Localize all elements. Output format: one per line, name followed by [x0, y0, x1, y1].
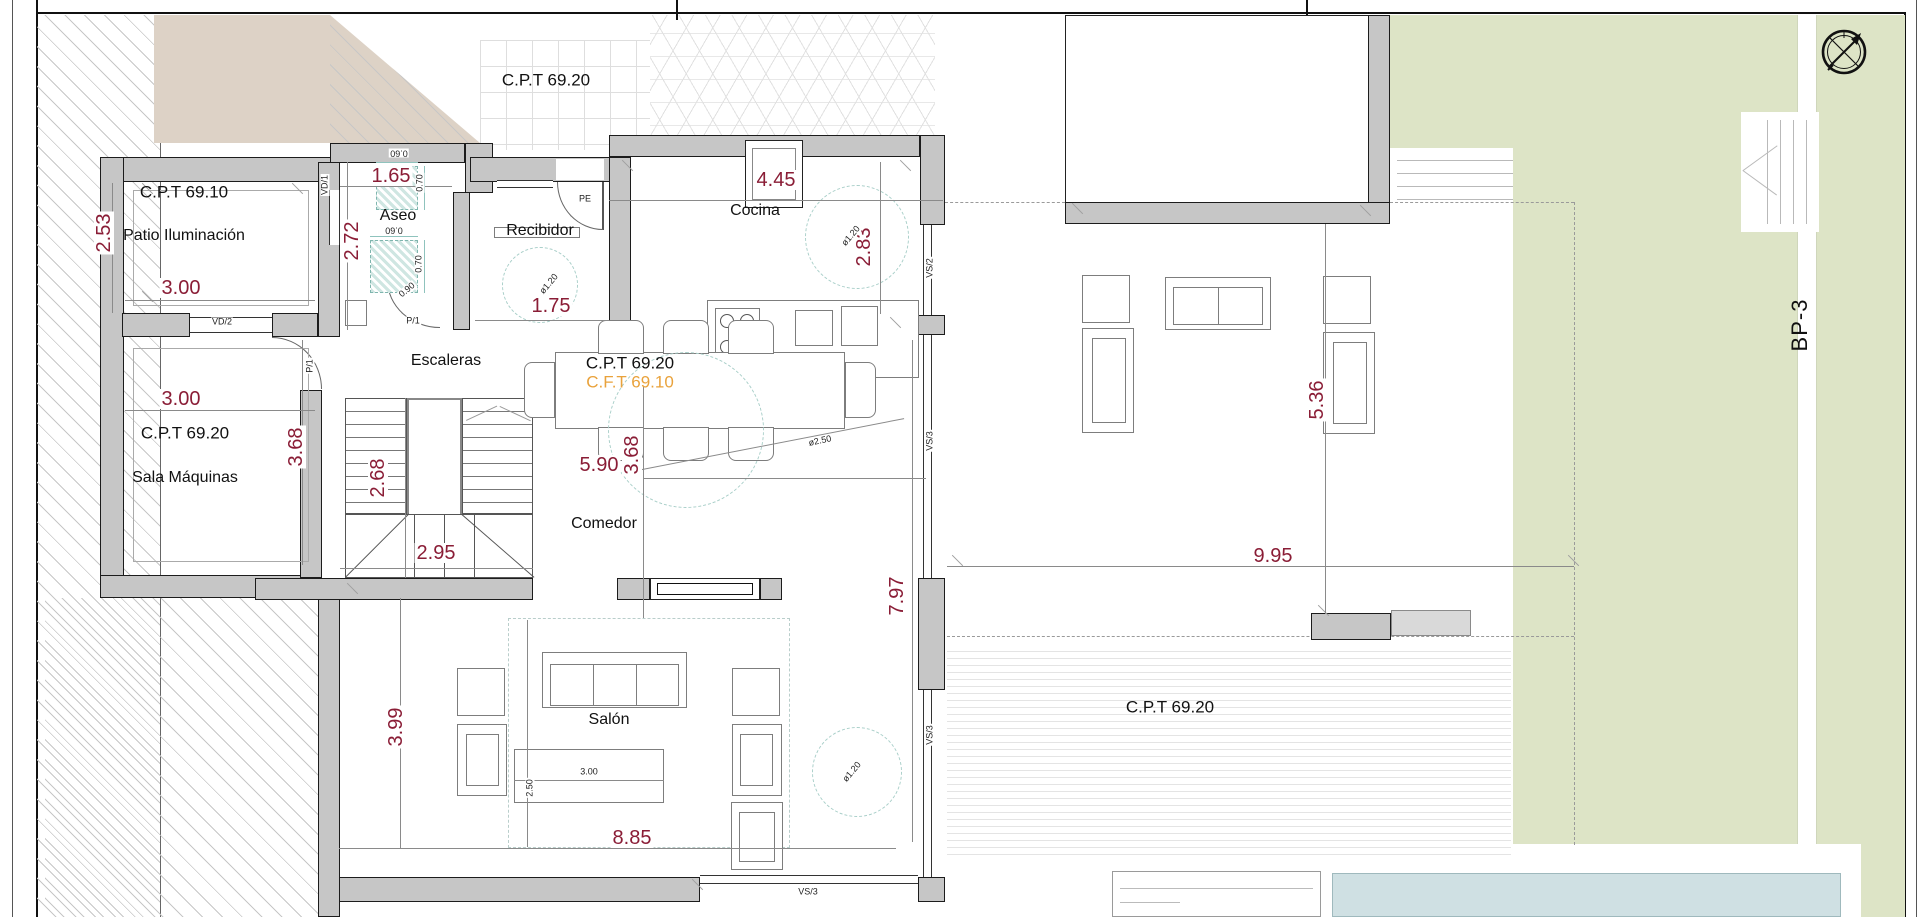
level-mark-patio: C.P.T 69.10 — [140, 184, 228, 201]
level-mark-cft: C.F.T 69.10 — [586, 374, 674, 391]
window-code-vs2: VS/2 — [926, 257, 935, 279]
dim-sofa-width: 3.00 — [579, 768, 599, 777]
dim-fixture: 0.70 — [415, 254, 424, 274]
room-label-recibidor: Recibidor — [506, 223, 574, 239]
dim-sala-height: 3.68 — [286, 426, 306, 469]
window-code-vs3: VS/3 — [926, 724, 935, 746]
level-mark-interior: C.P.T 69.20 — [586, 355, 674, 372]
dim-recibidor: 1.75 — [530, 296, 573, 316]
dim-sala-width: 3.00 — [160, 389, 203, 409]
dim-fixture: 0.70 — [416, 173, 425, 193]
dim-aseo-width: 1.65 — [370, 166, 413, 186]
path-label-bp3: BP-3 — [1789, 299, 1811, 352]
dim-patio-width: 3.00 — [160, 278, 203, 298]
dim-terrace-width: 9.95 — [1252, 546, 1295, 566]
dim-comedor-left: 3.68 — [622, 434, 642, 477]
dim-stairs-height: 2.68 — [368, 457, 388, 500]
room-label-escaleras: Escaleras — [411, 353, 481, 369]
room-label-aseo: Aseo — [380, 208, 416, 224]
dim-turning-circle: ø1.20 — [841, 760, 864, 785]
window-code-vs3: VS/3 — [926, 430, 935, 452]
dim-door: 0.90 — [397, 280, 418, 299]
dim-stairs-width: 2.95 — [415, 543, 458, 563]
dim-salon-height: 3.99 — [386, 706, 406, 749]
dim-patio-height: 2.53 — [94, 212, 114, 255]
dim-turning-circle: ø1.20 — [538, 272, 561, 297]
dim-fixture: 0.60 — [384, 226, 404, 235]
dim-comedor-width: 5.90 — [578, 455, 621, 475]
dim-table-circle: ø2.50 — [807, 434, 833, 448]
door-code-hall: P/1 — [306, 358, 315, 374]
dim-cocina-width: 4.45 — [755, 170, 798, 190]
dim-east-facade: 7.97 — [887, 575, 907, 618]
room-label-patio: Patio Iluminación — [123, 228, 245, 244]
room-label-salon: Salón — [589, 712, 630, 728]
level-mark-terrace: C.P.T 69.20 — [1126, 699, 1214, 716]
room-label-comedor: Comedor — [571, 516, 637, 532]
window-code-vd2: VD/2 — [211, 318, 233, 327]
labels-layer: C.P.T 69.20C.P.T 69.10Patio Iluminación2… — [0, 0, 1920, 917]
window-code-vd1: VD/1 — [321, 174, 330, 196]
floor-plan-canvas: C.P.T 69.20C.P.T 69.10Patio Iluminación2… — [0, 0, 1920, 917]
door-code-aseo: P/1 — [405, 317, 421, 326]
dim-salon-width: 8.85 — [611, 828, 654, 848]
room-label-cocina: Cocina — [730, 203, 780, 219]
level-mark-site: C.P.T 69.20 — [502, 72, 590, 89]
dim-fixture: 0.60 — [389, 149, 409, 158]
room-label-sala-maquinas: Sala Máquinas — [132, 470, 238, 486]
door-code-pe: PE — [578, 195, 592, 204]
level-mark-sala: C.P.T 69.20 — [141, 425, 229, 442]
dim-sofa-zone: 2.50 — [526, 778, 535, 798]
dim-aseo-height: 2.72 — [342, 220, 362, 263]
dim-terrace-depth: 5.36 — [1307, 379, 1327, 422]
window-code-vs3: VS/3 — [797, 888, 819, 897]
